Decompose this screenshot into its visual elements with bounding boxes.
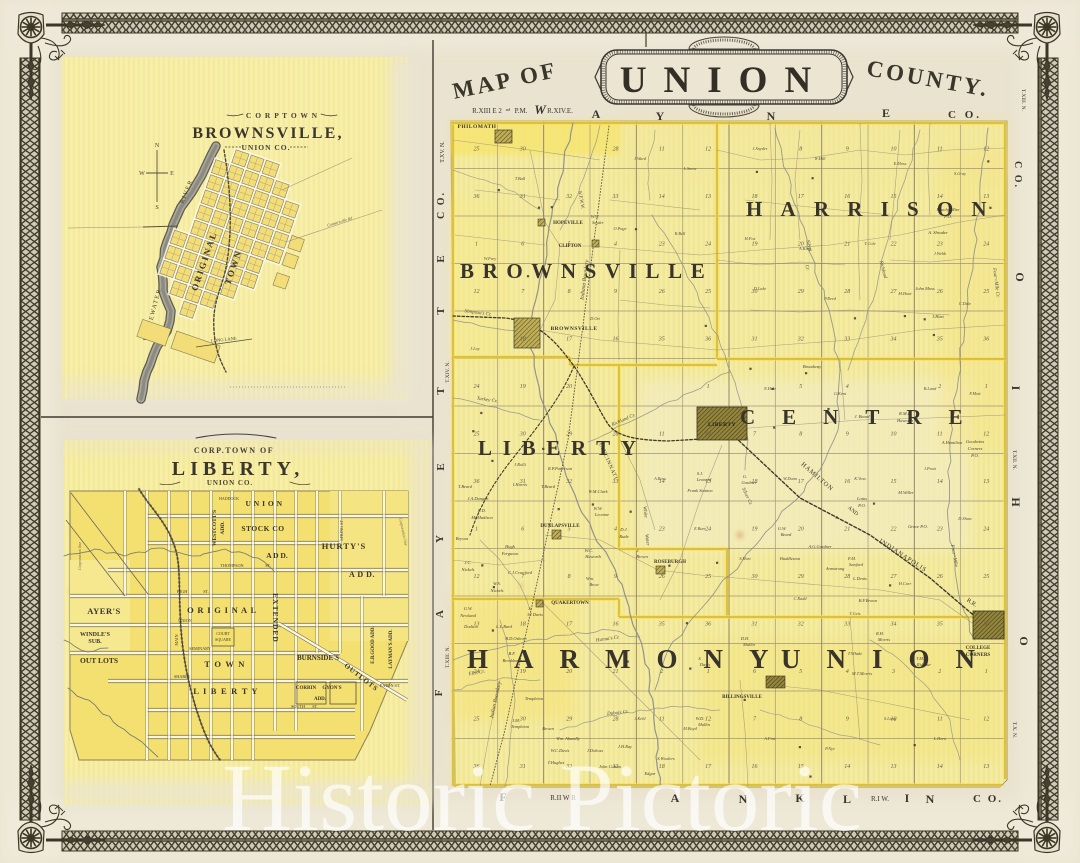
svg-text:THOMPSON: THOMPSON bbox=[220, 563, 243, 568]
svg-text:W.Hill: W.Hill bbox=[815, 156, 827, 161]
svg-text:18: 18 bbox=[520, 337, 526, 343]
svg-text:I: I bbox=[1009, 386, 1023, 391]
svg-text:nd: nd bbox=[506, 107, 511, 112]
svg-text:29: 29 bbox=[798, 574, 804, 580]
svg-text:15: 15 bbox=[891, 479, 897, 485]
svg-text:26: 26 bbox=[937, 289, 943, 295]
svg-text:A.G.Gardner: A.G.Gardner bbox=[807, 544, 831, 549]
svg-text:S.Hart: S.Hart bbox=[739, 556, 751, 561]
svg-text:30: 30 bbox=[751, 289, 758, 295]
svg-text:12: 12 bbox=[705, 146, 711, 152]
svg-text:H.Carr: H.Carr bbox=[898, 581, 912, 586]
svg-text:21: 21 bbox=[844, 527, 850, 533]
svg-text:Haworth: Haworth bbox=[584, 554, 601, 559]
svg-text:R.I W.: R.I W. bbox=[871, 795, 889, 803]
svg-text:33: 33 bbox=[612, 479, 619, 485]
svg-text:G.Kent: G.Kent bbox=[834, 391, 847, 396]
svg-text:A: A bbox=[434, 610, 446, 618]
svg-text:ST.: ST. bbox=[312, 704, 318, 709]
svg-text:S.Gray: S.Gray bbox=[954, 171, 966, 176]
svg-text:A: A bbox=[592, 107, 601, 121]
svg-text:T.XIII. N.: T.XIII. N. bbox=[1020, 89, 1026, 112]
svg-text:Beard: Beard bbox=[781, 532, 792, 537]
svg-text:J.: J. bbox=[636, 548, 639, 553]
svg-text:8: 8 bbox=[799, 431, 802, 437]
svg-text:25: 25 bbox=[705, 574, 711, 580]
svg-text:33: 33 bbox=[612, 194, 619, 200]
svg-text:EATON ST.: EATON ST. bbox=[380, 683, 400, 688]
svg-text:Wm. Abundly: Wm. Abundly bbox=[556, 736, 580, 741]
svg-text:E.B.GOOD ADD.: E.B.GOOD ADD. bbox=[371, 626, 376, 664]
svg-text:T: T bbox=[435, 387, 447, 395]
svg-text:B.F.Brown: B.F.Brown bbox=[859, 598, 878, 603]
svg-text:Goodwins: Goodwins bbox=[966, 439, 985, 444]
svg-text:23: 23 bbox=[937, 241, 943, 247]
svg-text:A D D.: A D D. bbox=[266, 551, 288, 560]
svg-text:W: W bbox=[139, 171, 145, 177]
svg-text:20: 20 bbox=[798, 241, 804, 247]
svg-text:Y: Y bbox=[434, 535, 446, 543]
svg-text:R.P.Patterson: R.P.Patterson bbox=[547, 466, 573, 471]
svg-text:28: 28 bbox=[613, 716, 619, 722]
svg-text:WINDLE'S: WINDLE'S bbox=[80, 632, 111, 638]
svg-text:17: 17 bbox=[798, 479, 805, 485]
svg-text:8: 8 bbox=[799, 146, 802, 152]
svg-text:O.Page: O.Page bbox=[613, 226, 626, 231]
svg-text:UNION: UNION bbox=[178, 618, 192, 623]
svg-text:M.Willer: M.Willer bbox=[897, 490, 914, 495]
svg-text:6: 6 bbox=[521, 527, 524, 533]
svg-text:B.D.Osborn: B.D.Osborn bbox=[505, 636, 527, 641]
svg-text:30: 30 bbox=[751, 574, 758, 580]
svg-text:24: 24 bbox=[705, 526, 711, 533]
svg-text:L.Snow: L.Snow bbox=[683, 166, 697, 171]
svg-text:11: 11 bbox=[659, 716, 665, 722]
svg-text:27: 27 bbox=[891, 574, 898, 580]
svg-text:HURTY'S: HURTY'S bbox=[322, 541, 367, 551]
svg-text:G.: G. bbox=[743, 474, 747, 479]
svg-text:22: 22 bbox=[891, 527, 897, 533]
svg-text:E: E bbox=[882, 106, 890, 120]
svg-text:14: 14 bbox=[659, 478, 665, 485]
svg-text:J.Loy: J.Loy bbox=[470, 346, 480, 351]
svg-text:31: 31 bbox=[519, 194, 526, 200]
svg-text:Broadway: Broadway bbox=[803, 364, 821, 369]
svg-text:W.D.: W.D. bbox=[696, 716, 705, 721]
svg-text:5: 5 bbox=[799, 384, 802, 390]
svg-text:18: 18 bbox=[752, 479, 758, 485]
svg-text:S: S bbox=[155, 205, 158, 211]
svg-text:G.W.: G.W. bbox=[778, 526, 787, 531]
svg-text:10: 10 bbox=[891, 716, 897, 722]
svg-text:J.Ward: J.Ward bbox=[634, 156, 647, 161]
svg-text:U N I O N: U N I O N bbox=[245, 499, 282, 508]
svg-text:A.Hamilton: A.Hamilton bbox=[941, 440, 963, 445]
svg-text:13: 13 bbox=[983, 479, 989, 485]
svg-text:32: 32 bbox=[565, 479, 572, 485]
svg-text:C O.: C O. bbox=[948, 109, 982, 121]
svg-text:14: 14 bbox=[659, 193, 665, 200]
svg-text:11: 11 bbox=[659, 431, 665, 437]
svg-text:Lotus: Lotus bbox=[856, 496, 867, 501]
svg-text:HARRISON: HARRISON bbox=[746, 197, 1005, 221]
svg-text:29: 29 bbox=[566, 716, 572, 722]
svg-text:11: 11 bbox=[937, 716, 943, 722]
svg-text:32: 32 bbox=[797, 337, 804, 343]
svg-text:P.O.: P.O. bbox=[857, 503, 866, 508]
svg-text:13: 13 bbox=[983, 764, 989, 770]
svg-text:EXTENDED: EXTENDED bbox=[271, 593, 280, 643]
svg-text:4: 4 bbox=[846, 383, 849, 390]
svg-text:PHILOMATH: PHILOMATH bbox=[458, 124, 497, 130]
svg-text:R.XIII E 2: R.XIII E 2 bbox=[472, 107, 502, 115]
svg-text:W.W.: W.W. bbox=[591, 214, 599, 219]
svg-text:12: 12 bbox=[705, 716, 711, 722]
svg-text:35: 35 bbox=[658, 622, 665, 628]
svg-text:1: 1 bbox=[475, 241, 478, 247]
svg-text:Bryson: Bryson bbox=[456, 536, 469, 541]
svg-text:35: 35 bbox=[658, 337, 665, 343]
svg-text:J.Snyder: J.Snyder bbox=[753, 146, 768, 151]
svg-text:30: 30 bbox=[519, 146, 526, 152]
svg-text:BURNSIDE'S: BURNSIDE'S bbox=[297, 654, 339, 662]
svg-text:P.O.: P.O. bbox=[970, 453, 979, 458]
svg-text:BROWNSVILLE: BROWNSVILLE bbox=[460, 259, 713, 283]
svg-text:Rude: Rude bbox=[618, 534, 628, 539]
svg-text:Sanford: Sanford bbox=[849, 562, 864, 567]
svg-text:35: 35 bbox=[936, 622, 943, 628]
svg-text:31: 31 bbox=[519, 479, 526, 485]
svg-text:OUT LOTS: OUT LOTS bbox=[80, 656, 118, 665]
svg-text:LIBERTY: LIBERTY bbox=[478, 436, 647, 460]
svg-text:Corporation line: Corporation line bbox=[77, 542, 82, 570]
svg-text:B.Land: B.Land bbox=[924, 386, 937, 391]
svg-text:Newland: Newland bbox=[459, 613, 476, 618]
svg-text:UNION CO.: UNION CO. bbox=[207, 479, 253, 487]
svg-text:S.: S. bbox=[528, 606, 531, 611]
svg-text:34: 34 bbox=[890, 621, 897, 628]
svg-text:36: 36 bbox=[982, 337, 989, 343]
svg-text:Mt.Madison: Mt.Madison bbox=[470, 515, 493, 520]
svg-text:28: 28 bbox=[844, 289, 850, 295]
svg-text:J.M.: J.M. bbox=[512, 718, 520, 723]
svg-text:27: 27 bbox=[891, 289, 898, 295]
svg-text:J.Kehl: J.Kehl bbox=[634, 716, 646, 721]
svg-text:O: O bbox=[1017, 636, 1031, 645]
svg-text:N.Hale: N.Hale bbox=[763, 386, 776, 391]
svg-text:K.Voss: K.Voss bbox=[853, 476, 866, 481]
svg-text:9: 9 bbox=[846, 431, 849, 437]
svg-text:10: 10 bbox=[891, 146, 897, 152]
svg-text:HOPEVILLE: HOPEVILLE bbox=[553, 221, 583, 226]
svg-text:P.M.: P.M. bbox=[515, 107, 528, 115]
svg-text:25: 25 bbox=[474, 146, 480, 152]
svg-text:ST.: ST. bbox=[203, 589, 209, 594]
svg-text:R.XIV.E.: R.XIV.E. bbox=[547, 107, 573, 115]
svg-text:Snyder: Snyder bbox=[592, 220, 604, 225]
svg-text:L.Horn: L.Horn bbox=[933, 736, 947, 741]
svg-text:32: 32 bbox=[565, 194, 572, 200]
svg-text:BROWNSVILLE,: BROWNSVILLE, bbox=[192, 125, 343, 142]
svg-text:AYER'S: AYER'S bbox=[87, 606, 120, 616]
svg-text:1: 1 bbox=[707, 384, 710, 390]
svg-text:36: 36 bbox=[473, 479, 480, 485]
svg-text:QUAKERTOWN: QUAKERTOWN bbox=[551, 601, 589, 606]
svg-text:L.L.Bard: L.L.Bard bbox=[495, 624, 513, 629]
svg-text:CENTRE: CENTRE bbox=[740, 405, 990, 429]
svg-text:J.A.Dungan: J.A.Dungan bbox=[468, 496, 490, 501]
svg-text:12: 12 bbox=[983, 716, 989, 722]
svg-text:35: 35 bbox=[936, 337, 943, 343]
svg-text:J.Hart: J.Hart bbox=[932, 314, 944, 319]
svg-text:R.H.: R.H. bbox=[875, 631, 884, 636]
svg-text:C O.: C O. bbox=[1012, 161, 1023, 189]
svg-text:T.Beard: T.Beard bbox=[458, 484, 473, 489]
svg-text:H: H bbox=[1009, 497, 1023, 507]
svg-text:F.Mott: F.Mott bbox=[968, 391, 981, 396]
svg-text:17: 17 bbox=[566, 622, 573, 628]
svg-text:UNION: UNION bbox=[620, 60, 828, 101]
svg-text:L I B E R T Y: L I B E R T Y bbox=[193, 686, 259, 696]
svg-text:19: 19 bbox=[520, 384, 526, 390]
svg-text:18: 18 bbox=[520, 622, 526, 628]
svg-text:F: F bbox=[433, 689, 445, 696]
svg-text:LIBERTY,: LIBERTY, bbox=[172, 458, 305, 480]
svg-text:T.XIII. N.: T.XIII. N. bbox=[445, 645, 451, 668]
svg-text:E: E bbox=[435, 463, 447, 470]
svg-text:DUNLAPSVILLE: DUNLAPSVILLE bbox=[540, 524, 580, 529]
svg-text:2: 2 bbox=[938, 384, 941, 390]
svg-text:20: 20 bbox=[566, 384, 572, 390]
svg-text:HARMONY: HARMONY bbox=[467, 644, 794, 674]
svg-text:P.Reed: P.Reed bbox=[823, 296, 837, 301]
svg-text:20: 20 bbox=[798, 527, 804, 533]
svg-text:36: 36 bbox=[982, 622, 989, 628]
svg-text:12: 12 bbox=[474, 289, 480, 295]
svg-text:30: 30 bbox=[519, 716, 526, 722]
svg-text:GYON'S: GYON'S bbox=[322, 686, 341, 691]
svg-text:N: N bbox=[926, 792, 935, 806]
svg-text:UNION CO.: UNION CO. bbox=[241, 143, 290, 152]
svg-text:O R I G I N A L: O R I G I N A L bbox=[187, 605, 257, 615]
svg-text:Leonine: Leonine bbox=[594, 512, 609, 517]
svg-text:SQUARE: SQUARE bbox=[215, 637, 232, 642]
svg-text:T.XII. N.: T.XII. N. bbox=[1011, 450, 1017, 471]
svg-text:11: 11 bbox=[659, 146, 665, 152]
svg-text:W.C.: W.C. bbox=[585, 548, 593, 553]
svg-text:Hugh: Hugh bbox=[504, 544, 516, 549]
svg-text:E: E bbox=[170, 171, 174, 177]
svg-text:T.XIV. N.: T.XIV. N. bbox=[445, 361, 451, 383]
svg-text:ROSEBURGH: ROSEBURGH bbox=[654, 560, 686, 565]
svg-text:SOUTH: SOUTH bbox=[291, 704, 305, 709]
svg-text:ST.: ST. bbox=[265, 563, 271, 568]
svg-text:CORP.TOWN OF: CORP.TOWN OF bbox=[194, 446, 274, 455]
svg-text:31: 31 bbox=[751, 337, 758, 343]
svg-text:8: 8 bbox=[568, 574, 571, 580]
svg-text:33: 33 bbox=[843, 622, 850, 628]
svg-text:T: T bbox=[435, 307, 447, 315]
svg-text:T.Cole: T.Cole bbox=[864, 241, 875, 246]
svg-text:21: 21 bbox=[844, 241, 850, 247]
svg-text:28: 28 bbox=[613, 146, 619, 152]
svg-text:12: 12 bbox=[983, 146, 989, 152]
svg-text:24: 24 bbox=[474, 383, 480, 390]
svg-text:5: 5 bbox=[568, 527, 571, 533]
svg-text:24: 24 bbox=[705, 240, 711, 247]
svg-text:MAIN: MAIN bbox=[174, 634, 179, 645]
svg-text:HIGH: HIGH bbox=[177, 589, 187, 594]
svg-text:Grove P.O.: Grove P.O. bbox=[908, 524, 928, 529]
svg-text:16: 16 bbox=[613, 337, 619, 343]
svg-text:19: 19 bbox=[752, 241, 758, 247]
svg-text:WESTCOTT'S: WESTCOTT'S bbox=[212, 510, 218, 546]
svg-text:John Moss: John Moss bbox=[915, 286, 935, 291]
svg-text:26: 26 bbox=[659, 574, 665, 580]
svg-text:J.Rolli: J.Rolli bbox=[514, 462, 526, 467]
svg-text:12: 12 bbox=[983, 431, 989, 437]
svg-text:W.Dunn: W.Dunn bbox=[783, 476, 797, 481]
svg-text:S.J.: S.J. bbox=[697, 471, 703, 476]
svg-text:E: E bbox=[435, 255, 447, 262]
svg-text:11: 11 bbox=[937, 431, 943, 437]
svg-text:R.Bell: R.Bell bbox=[674, 231, 686, 236]
svg-text:25: 25 bbox=[983, 574, 989, 580]
svg-text:UNION: UNION bbox=[781, 644, 1001, 674]
svg-text:13: 13 bbox=[474, 622, 480, 628]
svg-text:SEMINARY: SEMINARY bbox=[189, 646, 211, 651]
svg-text:D.Ott: D.Ott bbox=[589, 316, 600, 321]
svg-text:4: 4 bbox=[614, 240, 617, 247]
svg-text:16: 16 bbox=[613, 622, 619, 628]
svg-text:12: 12 bbox=[474, 574, 480, 580]
svg-text:8: 8 bbox=[568, 289, 571, 295]
svg-text:14: 14 bbox=[937, 763, 943, 770]
svg-text:32: 32 bbox=[797, 622, 804, 628]
svg-text:Nickels: Nickels bbox=[490, 588, 504, 593]
svg-text:C O R P T O W N: C O R P T O W N bbox=[246, 111, 318, 120]
svg-text:W.M.Clark: W.M.Clark bbox=[588, 489, 608, 494]
svg-text:SUB.: SUB. bbox=[88, 639, 102, 645]
svg-text:T O W N: T O W N bbox=[204, 659, 245, 669]
svg-text:22: 22 bbox=[891, 241, 897, 247]
svg-text:5: 5 bbox=[568, 241, 571, 247]
svg-text:1: 1 bbox=[475, 527, 478, 533]
svg-text:COURT: COURT bbox=[216, 631, 230, 636]
svg-text:E.Moss: E.Moss bbox=[893, 161, 907, 166]
svg-text:CORRIN: CORRIN bbox=[296, 686, 317, 691]
svg-text:13: 13 bbox=[705, 479, 711, 485]
svg-text:36: 36 bbox=[704, 622, 711, 628]
svg-text:E.D.: E.D. bbox=[477, 508, 486, 513]
svg-text:W.S.: W.S. bbox=[493, 581, 501, 586]
svg-text:A. Shrader: A. Shrader bbox=[927, 230, 948, 235]
svg-text:23: 23 bbox=[659, 527, 665, 533]
svg-text:31: 31 bbox=[751, 622, 758, 628]
svg-text:Historic Pictoric: Historic Pictoric bbox=[222, 744, 862, 851]
svg-text:T.Geis: T.Geis bbox=[849, 611, 860, 616]
svg-text:LAYMAN'S ADD.: LAYMAN'S ADD. bbox=[389, 629, 394, 669]
svg-text:11: 11 bbox=[937, 146, 943, 152]
svg-text:O: O bbox=[1013, 272, 1027, 281]
svg-text:Wm.: Wm. bbox=[586, 576, 594, 581]
svg-text:C O.: C O. bbox=[436, 191, 447, 219]
svg-text:19: 19 bbox=[752, 527, 758, 533]
svg-text:Brown: Brown bbox=[542, 726, 554, 731]
svg-text:T.X. N.: T.X. N. bbox=[1011, 722, 1017, 739]
svg-text:A D D.: A D D. bbox=[349, 570, 375, 579]
svg-text:LIBERTY: LIBERTY bbox=[708, 422, 736, 428]
svg-text:Armstrong: Armstrong bbox=[825, 566, 845, 571]
svg-text:H.Fox: H.Fox bbox=[744, 236, 756, 241]
svg-text:T.Beard: T.Beard bbox=[541, 484, 556, 489]
svg-text:12: 12 bbox=[705, 431, 711, 437]
svg-text:ADD.: ADD. bbox=[220, 521, 226, 535]
svg-text:Templeton: Templeton bbox=[525, 696, 544, 701]
svg-text:16: 16 bbox=[844, 479, 850, 485]
svg-text:BILLINGSVILLE: BILLINGSVILLE bbox=[722, 695, 762, 700]
svg-text:D.Shaw: D.Shaw bbox=[957, 516, 972, 521]
svg-text:14: 14 bbox=[937, 478, 943, 485]
svg-text:9: 9 bbox=[846, 716, 849, 722]
svg-text:N: N bbox=[767, 109, 776, 123]
svg-text:10: 10 bbox=[891, 431, 897, 437]
svg-text:6: 6 bbox=[521, 241, 524, 247]
svg-text:Brow: Brow bbox=[589, 582, 598, 587]
svg-text:17: 17 bbox=[566, 337, 573, 343]
svg-text:C.Dale: C.Dale bbox=[959, 301, 971, 306]
svg-text:25: 25 bbox=[474, 716, 480, 722]
svg-text:36: 36 bbox=[473, 194, 480, 200]
svg-text:13: 13 bbox=[891, 764, 897, 770]
svg-text:Y: Y bbox=[656, 109, 665, 123]
svg-text:G.W.: G.W. bbox=[464, 606, 473, 611]
svg-text:D.J.: D.J. bbox=[619, 527, 628, 532]
svg-text:26: 26 bbox=[937, 574, 943, 580]
svg-text:Templeton: Templeton bbox=[511, 724, 530, 729]
svg-text:N: N bbox=[155, 143, 160, 149]
svg-text:C.Rudd: C.Rudd bbox=[793, 596, 807, 601]
svg-text:C O.: C O. bbox=[973, 793, 1003, 805]
svg-text:Brown: Brown bbox=[636, 554, 648, 559]
svg-text:A.Fine: A.Fine bbox=[763, 736, 776, 741]
svg-text:J.Webb: J.Webb bbox=[934, 251, 947, 256]
svg-text:Frank Stanton: Frank Stanton bbox=[686, 488, 713, 493]
svg-text:Nickels: Nickels bbox=[461, 567, 475, 572]
svg-text:9: 9 bbox=[846, 146, 849, 152]
svg-text:I: I bbox=[905, 791, 910, 805]
svg-text:25: 25 bbox=[705, 289, 711, 295]
svg-text:J.Pratt: J.Pratt bbox=[924, 466, 937, 471]
svg-text:T.Ball: T.Ball bbox=[515, 176, 526, 181]
svg-text:1: 1 bbox=[985, 384, 988, 390]
svg-text:D.H.: D.H. bbox=[740, 636, 750, 641]
svg-text:W.W.: W.W. bbox=[594, 506, 603, 511]
svg-text:SPRING ST.: SPRING ST. bbox=[339, 519, 344, 541]
svg-text:M.Hunt: M.Hunt bbox=[897, 291, 912, 296]
svg-text:23: 23 bbox=[937, 527, 943, 533]
svg-text:34: 34 bbox=[890, 336, 897, 343]
svg-text:SHARPE: SHARPE bbox=[174, 674, 190, 679]
svg-text:F.M.: F.M. bbox=[847, 556, 856, 561]
svg-text:T.XV. N.: T.XV. N. bbox=[440, 141, 446, 163]
svg-text:Corners: Corners bbox=[968, 446, 983, 451]
svg-text:STOCK CO: STOCK CO bbox=[241, 524, 284, 533]
svg-text:Huddleston: Huddleston bbox=[779, 556, 801, 561]
svg-text:Morris: Morris bbox=[877, 637, 890, 642]
svg-text:24: 24 bbox=[983, 240, 989, 247]
svg-text:34 Davis: 34 Davis bbox=[527, 612, 543, 617]
